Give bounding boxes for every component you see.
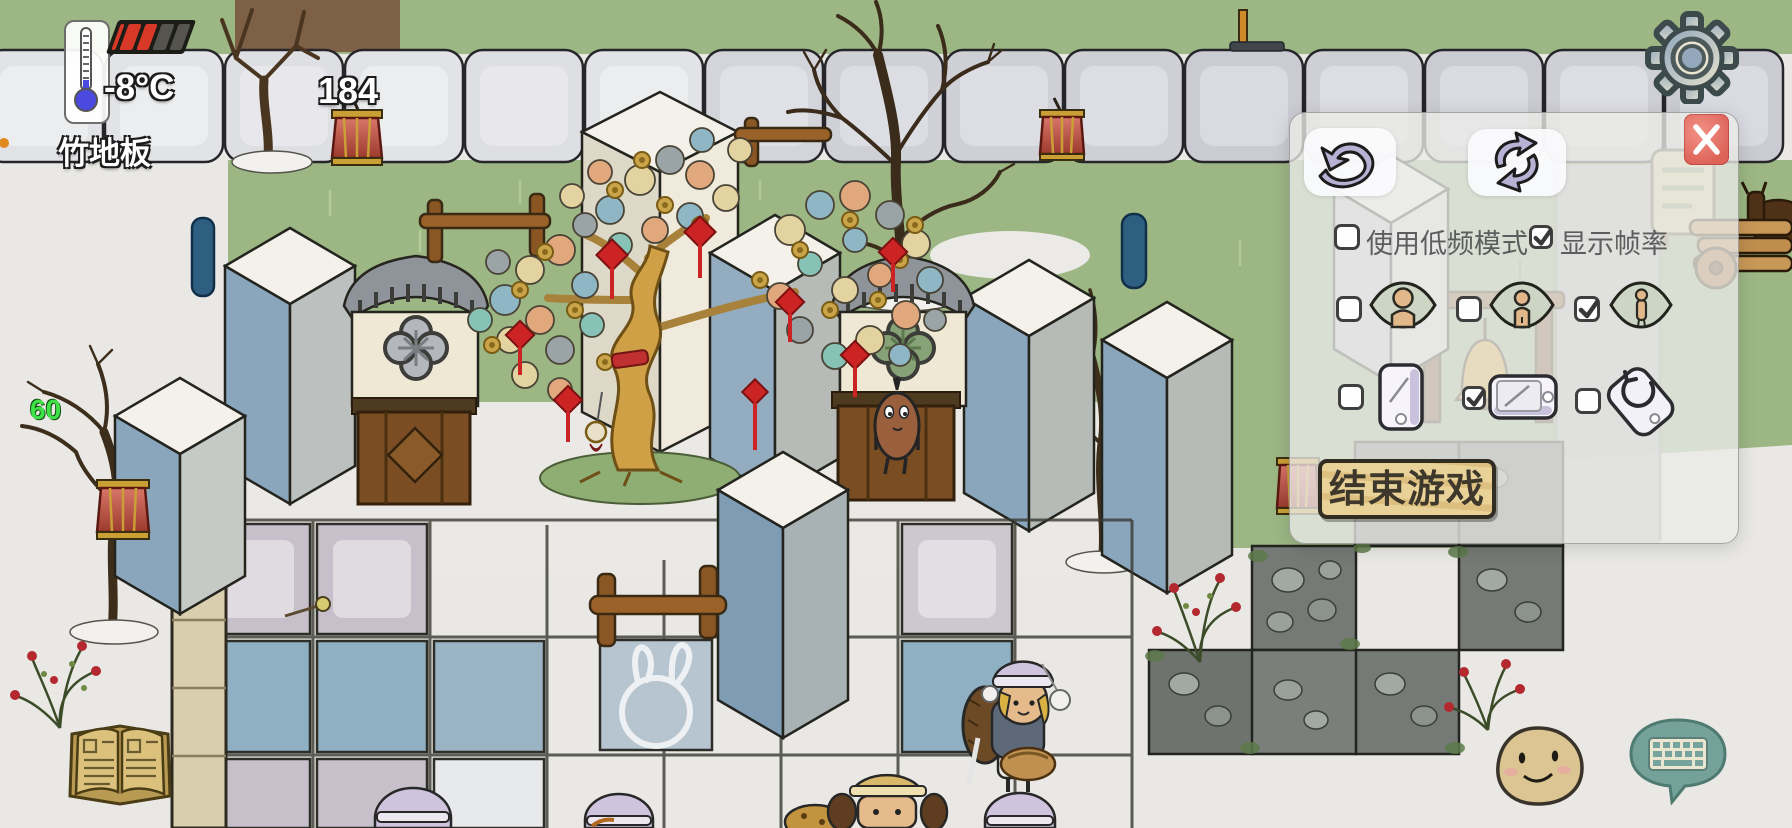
view-far-checkbox[interactable] xyxy=(1574,296,1600,322)
emote-face-button[interactable] xyxy=(1492,724,1588,808)
eye-mid-icon xyxy=(1488,281,1556,329)
view-mid-checkbox[interactable] xyxy=(1456,296,1482,322)
view-far-toggle[interactable] xyxy=(1608,281,1674,329)
undo-button[interactable] xyxy=(1304,128,1396,196)
gear-icon xyxy=(1644,8,1740,104)
wooden-door-left[interactable] xyxy=(352,398,476,504)
portrait-toggle[interactable] xyxy=(1376,362,1426,432)
auto-rotate-toggle[interactable] xyxy=(1605,365,1675,437)
game-screen: -8°C 184 竹地板 60 xyxy=(0,0,1792,828)
auto-rotate-checkbox[interactable] xyxy=(1575,388,1601,414)
smiley-face-icon xyxy=(1492,724,1588,808)
temperature-label: -8°C xyxy=(104,68,174,108)
health-pips xyxy=(106,20,196,54)
bunny-rug-tile[interactable] xyxy=(600,640,712,750)
keyboard-chat-button[interactable] xyxy=(1626,716,1730,808)
view-near-checkbox[interactable] xyxy=(1336,296,1362,322)
portrait-checkbox[interactable] xyxy=(1338,384,1364,410)
snow-pillar-front[interactable] xyxy=(718,452,848,738)
phone-rotate-icon xyxy=(1605,365,1675,437)
thermometer-icon xyxy=(66,22,106,118)
journal-book-button[interactable] xyxy=(62,718,178,810)
floor-name-label: 竹地板 xyxy=(58,128,151,173)
ornament-wall-left[interactable] xyxy=(344,256,488,406)
undo-arrow-icon xyxy=(1304,128,1396,196)
fps-counter: 60 xyxy=(30,394,61,426)
counter-label: 184 xyxy=(318,70,378,112)
restart-button[interactable] xyxy=(1468,129,1566,196)
landscape-toggle[interactable] xyxy=(1487,372,1559,422)
settings-panel: 使用低频模式 显示帧率 xyxy=(1289,112,1739,544)
open-book-icon xyxy=(62,718,178,810)
show-fps-label: 显示帧率 xyxy=(1560,222,1668,261)
phone-landscape-icon xyxy=(1487,372,1559,422)
show-fps-checkbox[interactable] xyxy=(1529,225,1553,249)
eye-near-icon xyxy=(1368,281,1438,329)
view-near-toggle[interactable] xyxy=(1368,281,1438,329)
view-mid-toggle[interactable] xyxy=(1488,281,1556,329)
close-panel-button[interactable] xyxy=(1684,114,1729,165)
phone-portrait-icon xyxy=(1376,362,1426,432)
restart-cycle-icon xyxy=(1468,129,1566,196)
keyboard-icon xyxy=(1626,716,1730,808)
settings-gear-button[interactable] xyxy=(1644,8,1740,104)
low-freq-checkbox[interactable] xyxy=(1334,224,1360,250)
end-game-button[interactable]: 结束游戏 xyxy=(1318,459,1496,519)
close-x-icon xyxy=(1684,114,1729,165)
low-freq-label: 使用低频模式 xyxy=(1366,222,1528,261)
landscape-checkbox[interactable] xyxy=(1462,386,1486,410)
eye-far-icon xyxy=(1608,281,1674,329)
